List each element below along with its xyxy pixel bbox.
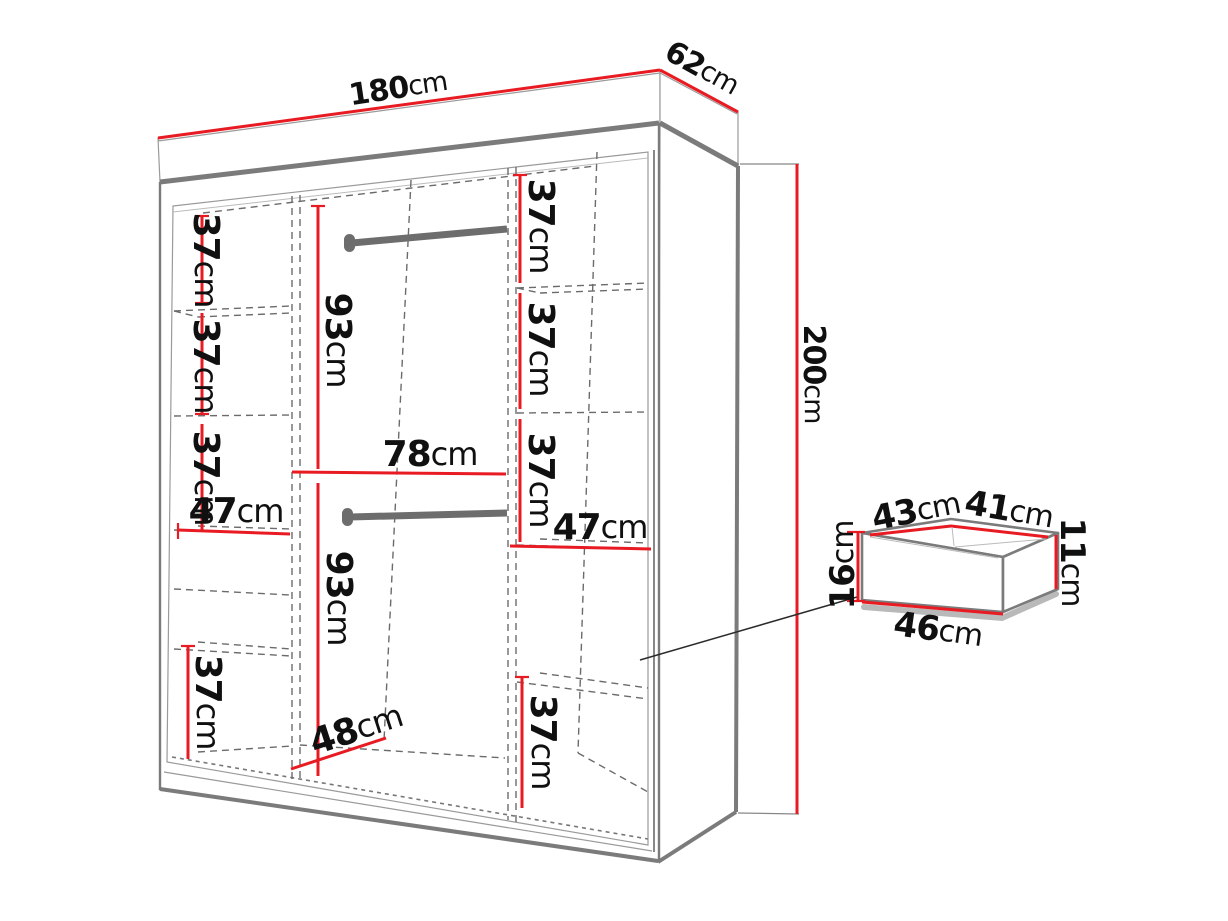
label-mid-93-upper: 93cm (318, 293, 359, 388)
label-right-37-1: 37cm (521, 179, 562, 274)
label-mid-93-lower: 93cm (319, 551, 360, 646)
right-outer-edge (736, 166, 738, 812)
label-left-37-2: 37cm (186, 319, 227, 414)
diagram-canvas: 180cm 62cm 200cm 37cm 37cm 37cm 47cm 37c… (0, 0, 1228, 921)
label-right-37-4: 37cm (523, 695, 564, 790)
label-drawer-16: 16cm (823, 520, 863, 609)
dim-ext-height-bottom (738, 813, 799, 814)
hanging-rail-rod (350, 513, 507, 517)
wardrobe-dimension-diagram: 180cm 62cm 200cm 37cm 37cm 37cm 47cm 37c… (0, 0, 1228, 921)
label-right-47: 47cm (553, 507, 648, 548)
right-side-panel (658, 123, 738, 862)
label-left-37-1: 37cm (186, 213, 227, 308)
label-left-47: 47cm (189, 491, 284, 532)
hanging-rail-cap (344, 234, 355, 252)
label-mid-78: 78cm (383, 434, 478, 475)
hanging-rail-cap (342, 508, 353, 526)
label-left-37-4: 37cm (188, 655, 229, 750)
label-drawer-11: 11cm (1052, 517, 1092, 606)
label-right-37-2: 37cm (521, 302, 562, 397)
label-height-200: 200cm (797, 325, 832, 424)
